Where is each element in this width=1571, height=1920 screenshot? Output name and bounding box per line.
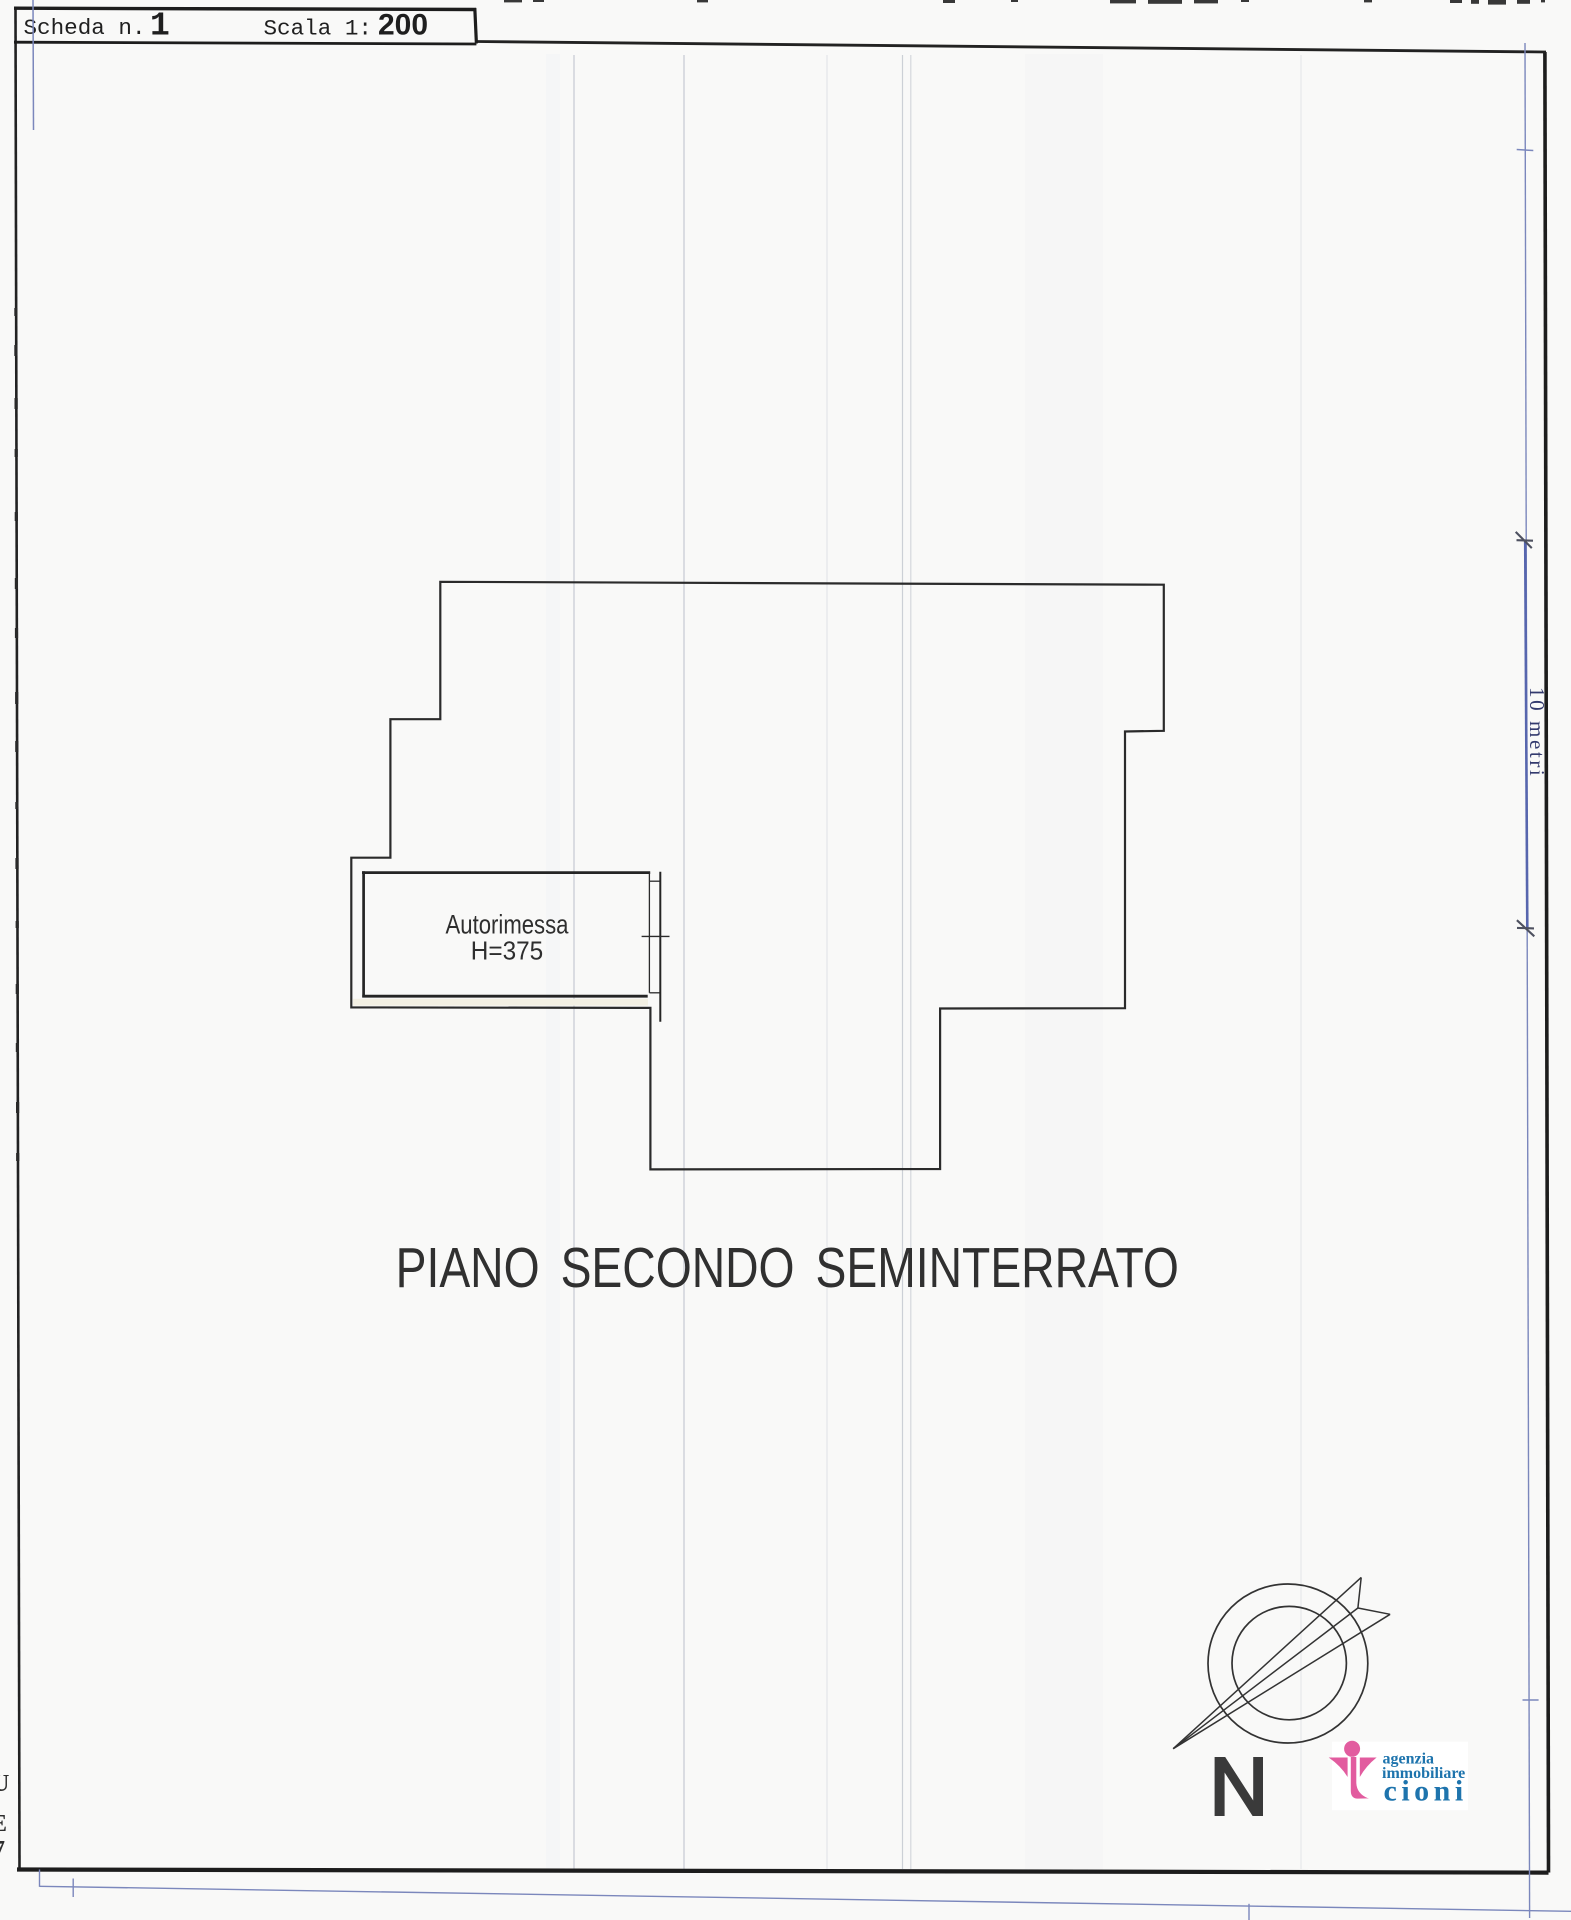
- svg-text:cioni: cioni: [1384, 1775, 1468, 1808]
- svg-text:E: E: [0, 1811, 7, 1837]
- svg-text:PIANO SECONDO SEMINTERRATO: PIANO SECONDO SEMINTERRATO: [396, 1236, 1179, 1300]
- svg-text:Scheda n.: Scheda n.: [24, 15, 146, 41]
- svg-text:Scala 1:: Scala 1:: [264, 16, 372, 42]
- svg-text:200: 200: [378, 9, 428, 42]
- svg-text:7: 7: [0, 1837, 5, 1863]
- svg-text:10 metri: 10 metri: [1525, 687, 1549, 778]
- svg-text:Autorimessa: Autorimessa: [446, 911, 569, 941]
- svg-text:1: 1: [150, 8, 170, 45]
- svg-text:H=375: H=375: [471, 937, 543, 966]
- svg-text:U: U: [0, 1771, 9, 1797]
